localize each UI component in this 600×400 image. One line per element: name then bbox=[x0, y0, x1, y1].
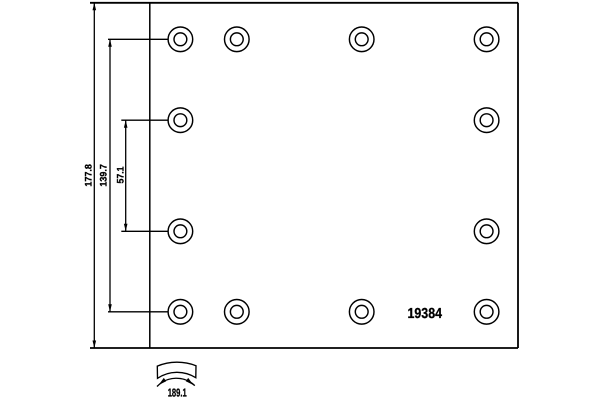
svg-text:139.7: 139.7 bbox=[98, 164, 109, 187]
svg-text:189.1: 189.1 bbox=[168, 388, 187, 400]
svg-text:177.8: 177.8 bbox=[84, 164, 95, 187]
svg-text:57.1: 57.1 bbox=[116, 166, 127, 184]
svg-text:19384: 19384 bbox=[408, 306, 443, 322]
